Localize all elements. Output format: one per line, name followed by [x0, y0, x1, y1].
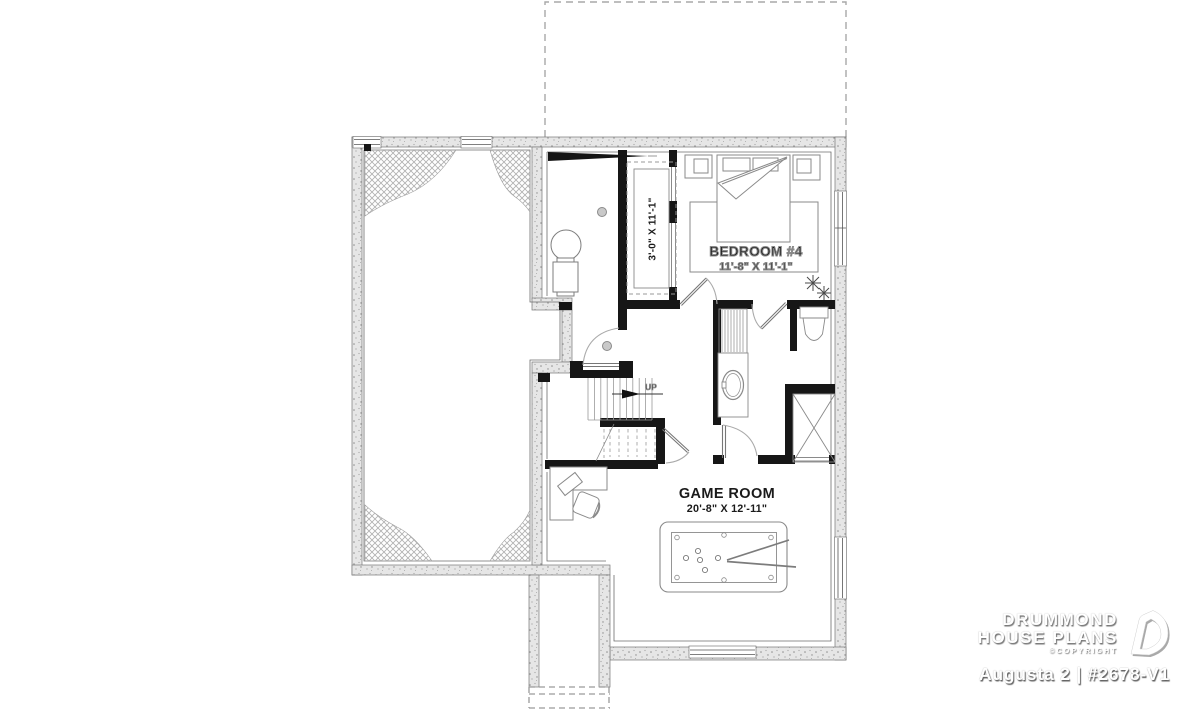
lamp: [797, 159, 811, 173]
pillow: [723, 158, 750, 171]
window-bedroom-right: [835, 191, 847, 266]
brand-name-line2: HOUSE PLANS: [978, 629, 1118, 647]
window-top-center: [461, 137, 492, 149]
game-room-label: GAME ROOM: [679, 486, 775, 502]
drummond-logo-icon: [1124, 607, 1170, 659]
window-gameroom-bottom: [689, 646, 756, 658]
bedroom-label: BEDROOM #4: [709, 244, 802, 259]
closet-dims-label: 3'-0" X 11'-1": [648, 197, 659, 260]
floor-plan-page: 3'-0" X 11'-1" BEDROOM #4 11'-8" X 11'-1…: [0, 0, 1200, 711]
brand-copyright: ©COPYRIGHT: [978, 648, 1118, 655]
lamp: [694, 159, 708, 173]
vanity-sink: [718, 353, 748, 417]
brand-name-line1: DRUMMOND: [978, 611, 1118, 629]
stairs-up-label: UP: [645, 382, 657, 392]
window-gameroom-right: [835, 537, 847, 599]
water-heater: [551, 230, 581, 260]
branding-block: DRUMMOND HOUSE PLANS ©COPYRIGHT Augusta …: [978, 607, 1170, 685]
furnace: [553, 262, 578, 292]
bedroom-dims-label: 11'-8" X 11'-1": [719, 261, 793, 273]
plan-title: Augusta 2 | #2678-V1: [978, 664, 1170, 685]
ceiling-light: [603, 342, 612, 351]
ceiling-light: [598, 208, 607, 217]
floor-plan: 3'-0" X 11'-1" BEDROOM #4 11'-8" X 11'-1…: [0, 0, 1200, 711]
game-room-dims-label: 20'-8" X 12'-11": [687, 503, 767, 515]
pool-table: [660, 522, 796, 592]
